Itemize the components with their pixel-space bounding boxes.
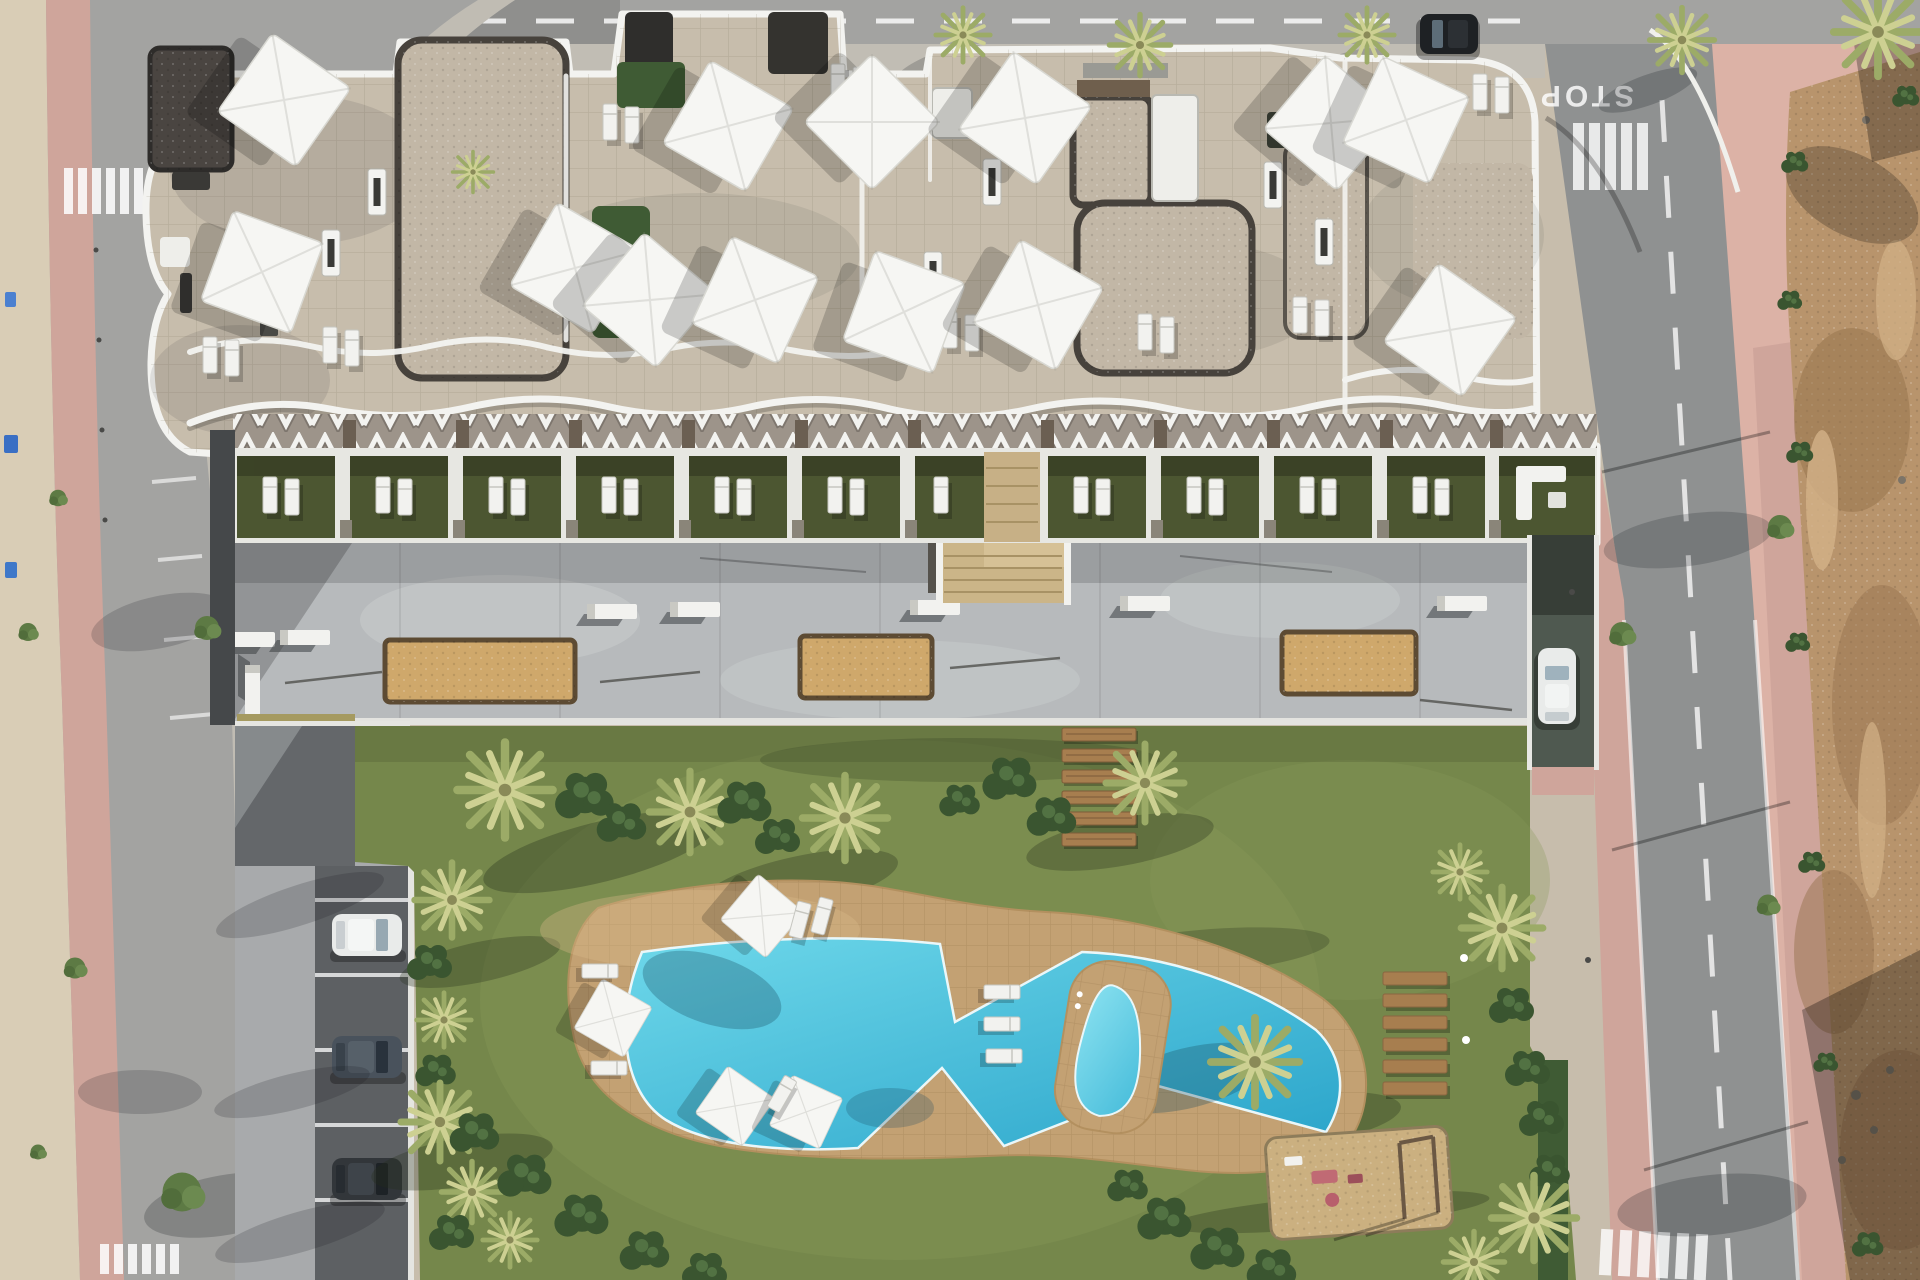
garden-terraces xyxy=(233,448,1597,544)
scene-canvas: STOP xyxy=(0,0,1920,1280)
plaza-curb xyxy=(355,718,1530,725)
concrete-lintel xyxy=(1083,63,1168,78)
building-west-wall xyxy=(210,430,235,725)
pergola-band xyxy=(233,414,1597,452)
moving-car-white xyxy=(1534,648,1580,730)
right-garage-ramp xyxy=(1527,535,1599,795)
plaza-steps xyxy=(928,543,1071,605)
rooftop-palm xyxy=(451,150,495,194)
side-table xyxy=(1462,1036,1470,1044)
side-table xyxy=(1460,954,1468,962)
playground xyxy=(1265,1126,1454,1244)
moving-car-black xyxy=(1416,14,1480,60)
aerial-render-image: STOP xyxy=(0,0,1920,1280)
pergola-shadow-band xyxy=(233,543,1530,583)
pergola-slats xyxy=(1077,80,1150,97)
parked-car-white xyxy=(330,914,406,962)
play-rider xyxy=(1347,1174,1363,1184)
terrace-shading xyxy=(237,456,1595,476)
play-rider xyxy=(1311,1169,1338,1184)
stone-path xyxy=(984,452,1040,542)
play-bench xyxy=(1284,1156,1303,1166)
